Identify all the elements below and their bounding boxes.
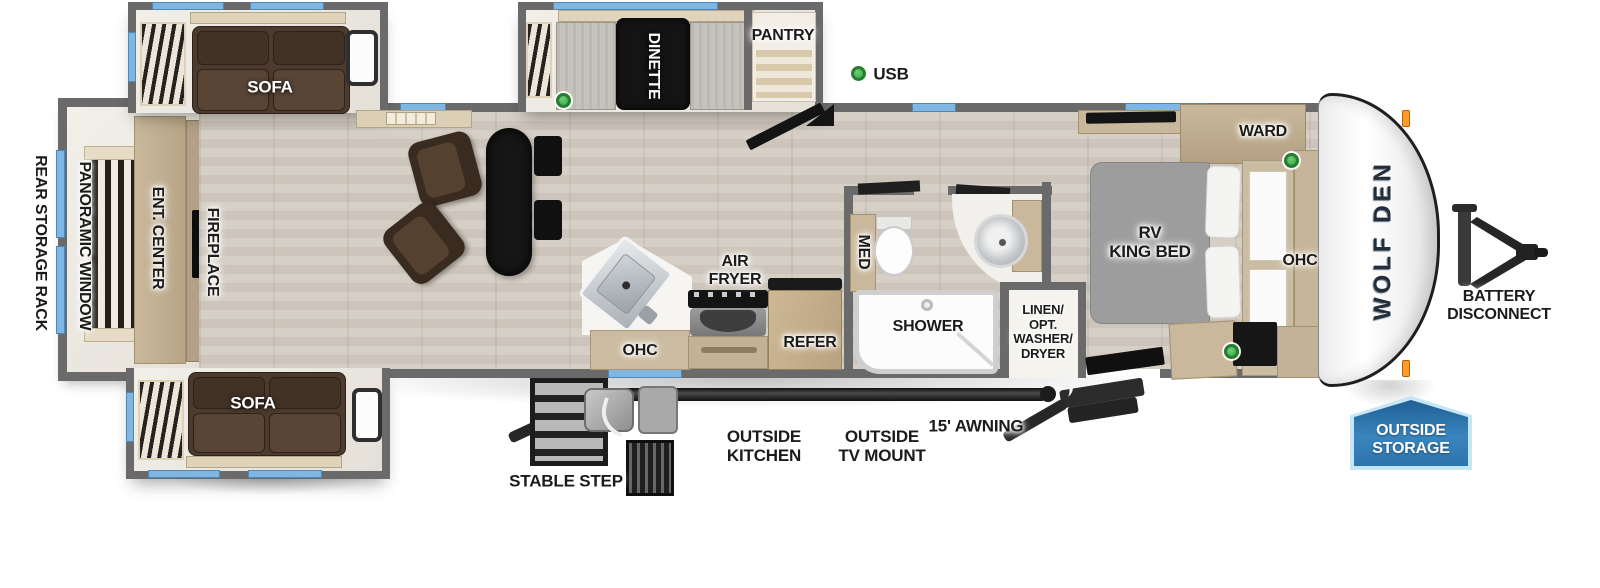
- bar-stool-2: [534, 200, 562, 240]
- label-outside-kitchen: OUTSIDE KITCHEN: [727, 427, 801, 465]
- bedroom-tv-dresser: [1233, 322, 1277, 366]
- slide-top-end-window: [346, 30, 378, 86]
- linen-wall-left: [1000, 288, 1009, 378]
- rear-window-strip-2: [56, 246, 65, 334]
- toilet-bowl: [874, 226, 914, 276]
- shower-glass-line: [956, 331, 994, 366]
- sofa-cushion: [269, 413, 341, 453]
- outside-storage-label: OUTSIDE STORAGE: [1372, 422, 1449, 458]
- console-books: [386, 112, 436, 125]
- oven-drawer: [688, 336, 768, 369]
- bathroom-sink: [974, 214, 1028, 268]
- label-rear-storage-rack: REAR STORAGE RACK: [31, 155, 49, 331]
- cooktop-knobs: [694, 292, 762, 297]
- range-body: [690, 308, 766, 336]
- usb-dot-ward: [1284, 153, 1299, 168]
- outside-griddle: [626, 440, 674, 496]
- awning-end-cap: [1040, 386, 1056, 402]
- sofa-top: [192, 26, 350, 114]
- slide-top-window-left: [128, 32, 136, 82]
- label-air-fryer: AIR FRYER: [709, 253, 762, 289]
- usb-dot-bedroom: [1224, 344, 1239, 359]
- linen-wall-right: [1078, 288, 1086, 378]
- refrigerator-top: [768, 278, 842, 290]
- dinette-bench-right: [690, 22, 750, 110]
- label-awning: 15' AWNING: [929, 416, 1024, 435]
- label-stable-step: STABLE STEP: [509, 471, 623, 490]
- linen-wall-top: [1000, 282, 1086, 290]
- outside-kitchen-bin-2: [638, 386, 678, 434]
- window-top-b: [912, 103, 956, 112]
- label-dinette: DINETTE: [644, 32, 662, 99]
- pantry-shelves: [756, 50, 812, 98]
- ground-shadow-rear-slide: [118, 472, 418, 520]
- refrigerator: [768, 290, 842, 370]
- slide-top-blinds: [140, 22, 186, 106]
- sofa-cushion: [193, 413, 265, 453]
- label-ohc-bedroom: OHC: [1283, 252, 1318, 270]
- brand-logo: WOLF DEN: [1371, 160, 1398, 320]
- label-sofa-top: SOFA: [247, 77, 293, 96]
- range-hood: [700, 310, 756, 332]
- cooktop: [688, 290, 768, 308]
- dinette-curtain: [526, 22, 552, 98]
- label-linen: LINEN/ OPT. WASHER/ DRYER: [1013, 303, 1072, 361]
- label-battery-disconnect: BATTERY DISCONNECT: [1447, 288, 1551, 324]
- pantry-wall: [744, 10, 752, 110]
- sink-drain: [999, 239, 1006, 246]
- floorplan-scene: WOLF DEN OUTSIDE STORAGE REAR STORAGE RA…: [0, 0, 1600, 588]
- slide-top-window-2: [250, 2, 324, 10]
- label-refer: REFER: [783, 334, 836, 352]
- slide-bottom-window-left: [126, 392, 134, 442]
- marker-light-bottom: [1402, 360, 1410, 377]
- usb-dot-dinette: [556, 93, 571, 108]
- chair-cushion: [415, 141, 467, 200]
- bath-wall-right: [1042, 182, 1051, 288]
- label-panoramic-window: PANORAMIC WINDOW: [75, 162, 93, 331]
- oven-handle: [701, 347, 757, 353]
- slide-top-window-1: [152, 2, 224, 10]
- sofa-cushion: [273, 31, 345, 65]
- sofa-cushion: [269, 377, 341, 409]
- bed-pillow-1: [1205, 165, 1241, 238]
- bedroom-tv: [1086, 111, 1176, 124]
- shelf-compartment: [1249, 171, 1287, 261]
- bar-stool-1: [534, 136, 562, 176]
- label-outside-tv-mount: OUTSIDE TV MOUNT: [838, 427, 925, 465]
- label-pantry: PANTRY: [752, 27, 815, 45]
- window-bottom-kitchen: [608, 369, 682, 378]
- rear-window-strip-1: [56, 150, 65, 238]
- label-ward: WARD: [1239, 123, 1287, 141]
- panoramic-window-valance-top: [84, 146, 140, 160]
- ladder-rung: [535, 431, 603, 438]
- slide-bottom-shelf: [186, 456, 342, 468]
- slide-bottom-window-2: [248, 470, 322, 478]
- panoramic-window-graphic: [90, 158, 136, 330]
- slide-top-shelf: [190, 12, 346, 24]
- label-med: MED: [854, 235, 872, 270]
- slide-bottom-blinds: [138, 380, 184, 460]
- sofa-cushion: [197, 31, 269, 65]
- bed-pillow-2: [1205, 245, 1241, 318]
- label-ent-center: ENT. CENTER: [148, 187, 166, 290]
- label-rv-king-bed: RV KING BED: [1109, 223, 1191, 261]
- label-usb: USB: [873, 64, 908, 83]
- island-table: [486, 128, 532, 276]
- ladder-rung: [535, 449, 603, 456]
- label-ohc-kitchen: OHC: [623, 342, 658, 360]
- usb-dot-legend: [851, 66, 866, 81]
- marker-light-top: [1402, 110, 1410, 127]
- label-shower: SHOWER: [893, 318, 964, 336]
- label-sofa-bottom: SOFA: [230, 393, 276, 412]
- slide-bottom-window-1: [148, 470, 220, 478]
- outside-storage-badge: OUTSIDE STORAGE: [1350, 396, 1472, 470]
- shower-drain: [921, 299, 933, 311]
- sofa-bottom: [188, 372, 346, 456]
- dinette-top-window: [553, 2, 718, 10]
- slide-bottom-end-window: [352, 388, 382, 442]
- label-fireplace: FIREPLACE: [203, 208, 221, 297]
